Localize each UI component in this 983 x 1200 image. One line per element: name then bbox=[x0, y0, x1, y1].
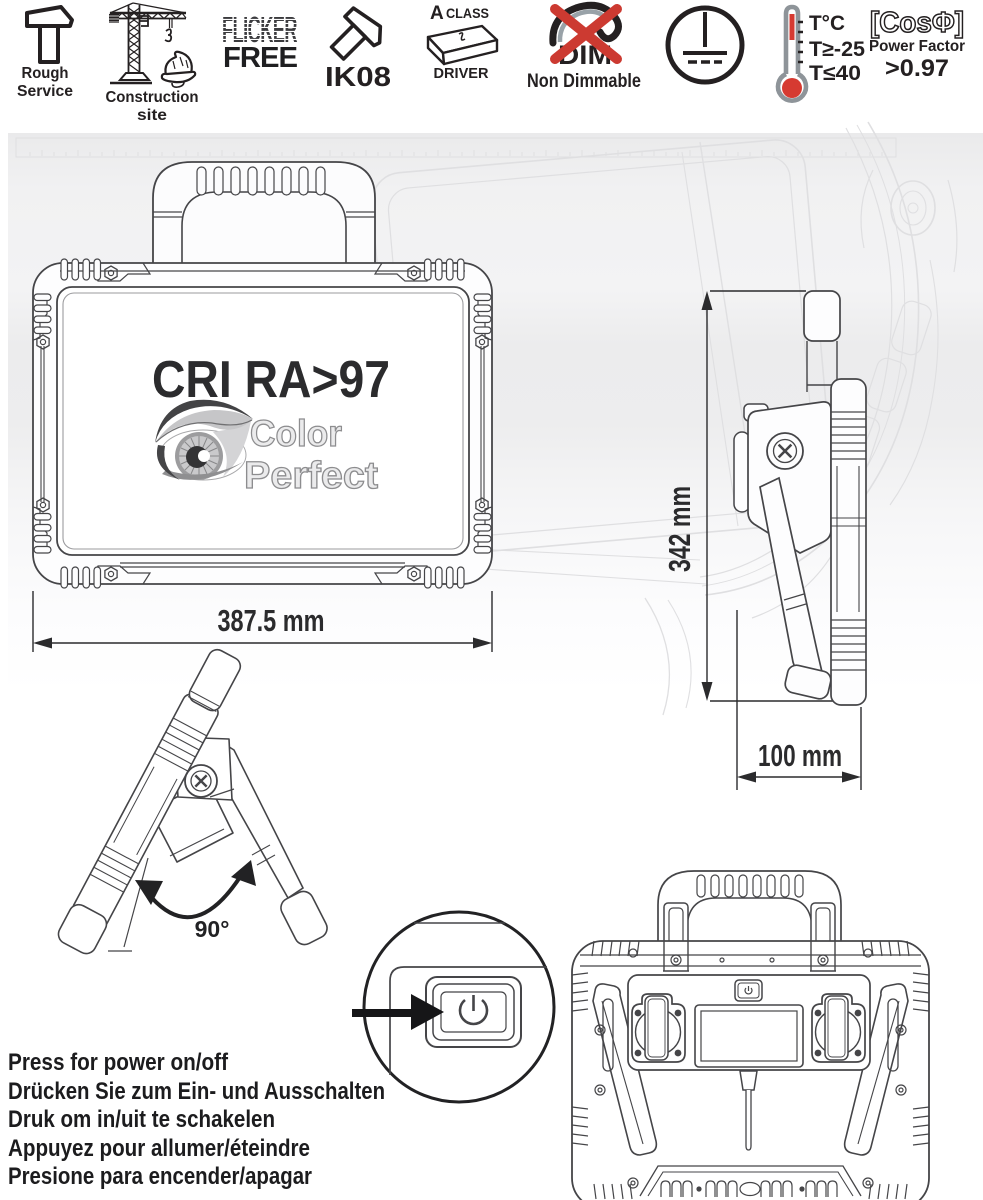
svg-text:DRIVER: DRIVER bbox=[434, 65, 489, 82]
svg-text:>0.97: >0.97 bbox=[885, 55, 949, 82]
svg-text:Perfect: Perfect bbox=[244, 455, 378, 497]
svg-text:90°: 90° bbox=[195, 916, 230, 942]
svg-text:Power Factor: Power Factor bbox=[869, 38, 965, 55]
svg-text:Druk om in/uit te schakelen: Druk om in/uit te schakelen bbox=[8, 1106, 275, 1133]
svg-text:T≤40: T≤40 bbox=[809, 62, 861, 85]
svg-text:Presione para encender/apagar: Presione para encender/apagar bbox=[8, 1163, 312, 1190]
svg-text:Appuyez pour allumer/éteindre: Appuyez pour allumer/éteindre bbox=[8, 1135, 310, 1162]
svg-text:FREE: FREE bbox=[223, 42, 298, 74]
svg-text:Service: Service bbox=[17, 83, 73, 100]
svg-text:[CosΦ]: [CosΦ] bbox=[870, 7, 964, 39]
svg-text:CRI RA>97: CRI RA>97 bbox=[152, 351, 390, 409]
svg-text:CLASS: CLASS bbox=[446, 5, 489, 21]
svg-text:342 mm: 342 mm bbox=[662, 486, 697, 572]
svg-text:387.5 mm: 387.5 mm bbox=[218, 603, 325, 638]
svg-text:T≥-25: T≥-25 bbox=[809, 38, 865, 61]
svg-text:Color: Color bbox=[250, 413, 342, 454]
svg-text:Drücken Sie zum Ein- und Aussc: Drücken Sie zum Ein- und Ausschalten bbox=[8, 1078, 385, 1105]
svg-text:Non Dimmable: Non Dimmable bbox=[527, 71, 641, 92]
svg-text:Press for power on/off: Press for power on/off bbox=[8, 1049, 229, 1076]
svg-text:Construction: Construction bbox=[106, 89, 199, 106]
svg-text:Rough: Rough bbox=[22, 65, 69, 82]
svg-text:IK08: IK08 bbox=[325, 61, 391, 92]
svg-text:T°C: T°C bbox=[809, 12, 845, 35]
svg-text:100 mm: 100 mm bbox=[758, 738, 842, 773]
svg-text:A: A bbox=[430, 3, 444, 24]
svg-text:site: site bbox=[137, 107, 167, 124]
